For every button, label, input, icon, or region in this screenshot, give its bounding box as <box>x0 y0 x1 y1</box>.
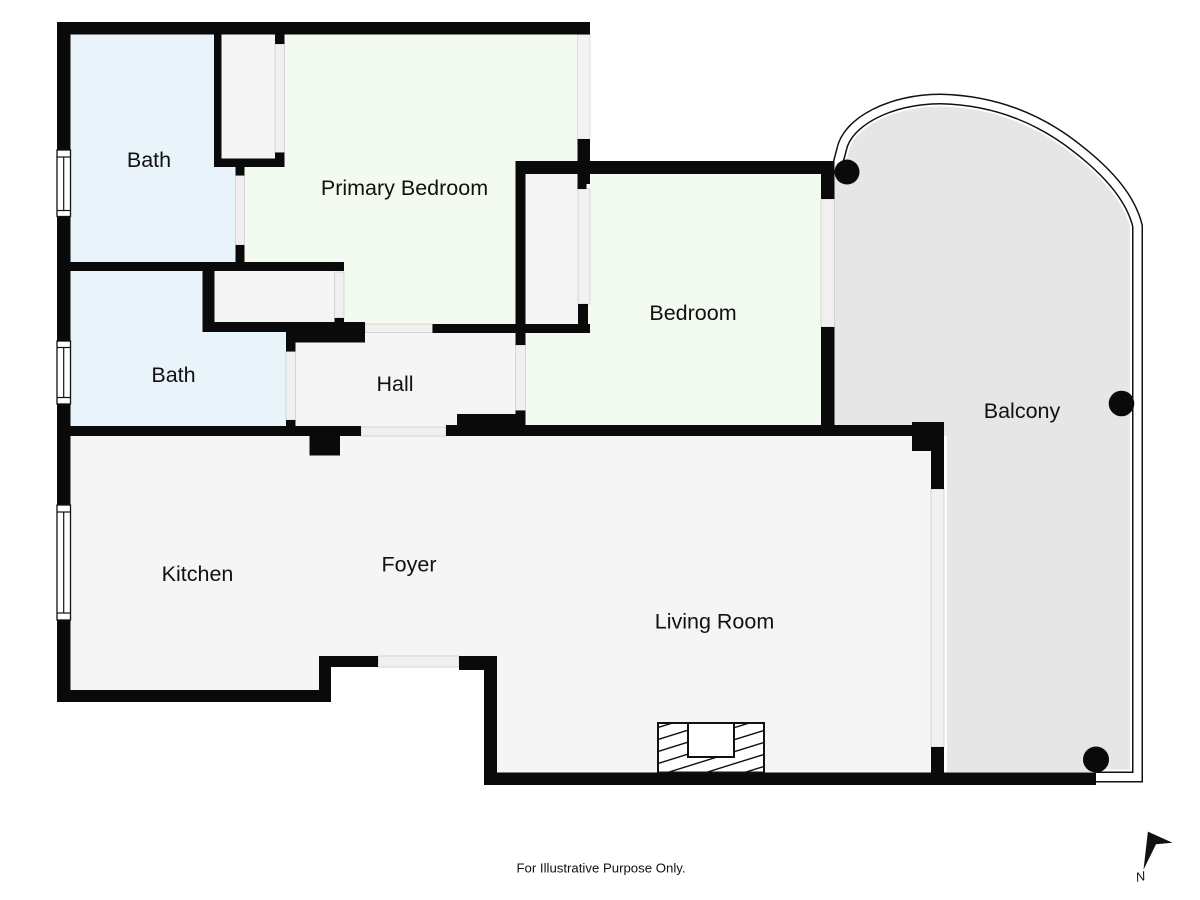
svg-text:Bath: Bath <box>151 363 195 387</box>
svg-text:Kitchen: Kitchen <box>162 562 234 586</box>
svg-text:Living Room: Living Room <box>655 610 775 634</box>
svg-text:Foyer: Foyer <box>382 553 437 577</box>
svg-text:For Illustrative Purpose Only.: For Illustrative Purpose Only. <box>516 861 685 876</box>
svg-text:Primary Bedroom: Primary Bedroom <box>321 176 488 200</box>
svg-text:Balcony: Balcony <box>984 399 1061 423</box>
svg-text:Bedroom: Bedroom <box>649 301 736 325</box>
svg-text:N: N <box>1134 868 1147 885</box>
svg-text:Hall: Hall <box>376 372 413 396</box>
svg-text:Bath: Bath <box>127 148 171 172</box>
